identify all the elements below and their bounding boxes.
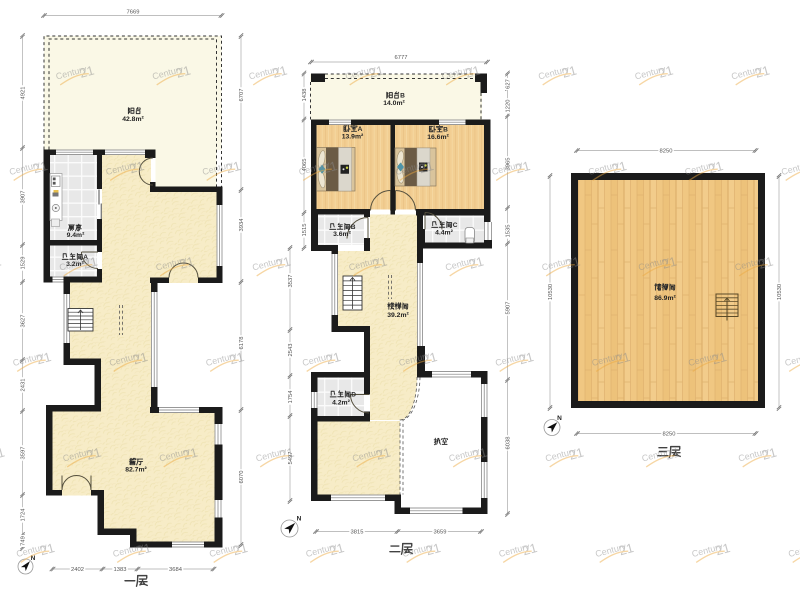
svg-text:3597: 3597: [21, 447, 27, 460]
svg-text:86.9m²: 86.9m²: [654, 295, 676, 302]
svg-text:1724: 1724: [21, 508, 27, 522]
svg-text:10530: 10530: [548, 284, 554, 300]
svg-text:5907: 5907: [506, 302, 512, 315]
svg-text:1754: 1754: [288, 390, 294, 404]
svg-text:3934: 3934: [239, 218, 245, 232]
svg-text:3659: 3659: [434, 530, 447, 536]
svg-text:6707: 6707: [239, 89, 245, 102]
svg-text:1383: 1383: [114, 567, 127, 573]
svg-text:8250: 8250: [660, 149, 673, 155]
svg-text:1535: 1535: [506, 225, 512, 238]
svg-text:C: C: [453, 222, 458, 229]
svg-text:8250: 8250: [663, 432, 676, 438]
svg-text:D: D: [351, 392, 356, 399]
svg-text:6070: 6070: [239, 471, 245, 484]
svg-text:3.6m²: 3.6m²: [333, 231, 351, 238]
svg-text:39.2m²: 39.2m²: [387, 312, 409, 319]
svg-text:4.4m²: 4.4m²: [435, 229, 453, 236]
svg-text:627: 627: [506, 79, 512, 89]
svg-text:B: B: [443, 127, 448, 134]
svg-text:1220: 1220: [506, 100, 512, 113]
svg-text:4.2m²: 4.2m²: [332, 399, 350, 406]
svg-text:N: N: [557, 415, 562, 422]
svg-text:B: B: [351, 224, 356, 231]
svg-text:6038: 6038: [506, 437, 512, 450]
svg-text:82.7m²: 82.7m²: [125, 466, 147, 473]
svg-text:1515: 1515: [302, 224, 308, 237]
svg-text:3627: 3627: [21, 315, 27, 328]
svg-text:6178: 6178: [239, 337, 245, 350]
svg-text:3537: 3537: [288, 275, 294, 288]
svg-text:749: 749: [21, 536, 27, 546]
svg-text:42.8m²: 42.8m²: [122, 116, 144, 123]
svg-text:3684: 3684: [169, 567, 183, 573]
svg-text:14.0m²: 14.0m²: [383, 100, 405, 107]
svg-text:2543: 2543: [288, 344, 294, 357]
svg-text:9.4m²: 9.4m²: [67, 232, 85, 239]
svg-text:2402: 2402: [71, 567, 84, 573]
svg-text:10530: 10530: [777, 284, 783, 300]
svg-text:7669: 7669: [127, 10, 140, 16]
svg-text:6777: 6777: [395, 55, 408, 61]
svg-text:3815: 3815: [351, 530, 364, 536]
svg-text:A: A: [358, 126, 363, 133]
svg-text:1529: 1529: [21, 257, 27, 270]
svg-text:B: B: [400, 93, 405, 100]
svg-text:16.6m²: 16.6m²: [427, 134, 449, 141]
svg-text:2431: 2431: [21, 379, 27, 392]
svg-text:1438: 1438: [302, 89, 308, 102]
svg-text:N: N: [297, 516, 302, 523]
svg-text:4921: 4921: [21, 87, 27, 100]
svg-text:3907: 3907: [21, 191, 27, 204]
svg-text:13.9m²: 13.9m²: [342, 133, 364, 140]
